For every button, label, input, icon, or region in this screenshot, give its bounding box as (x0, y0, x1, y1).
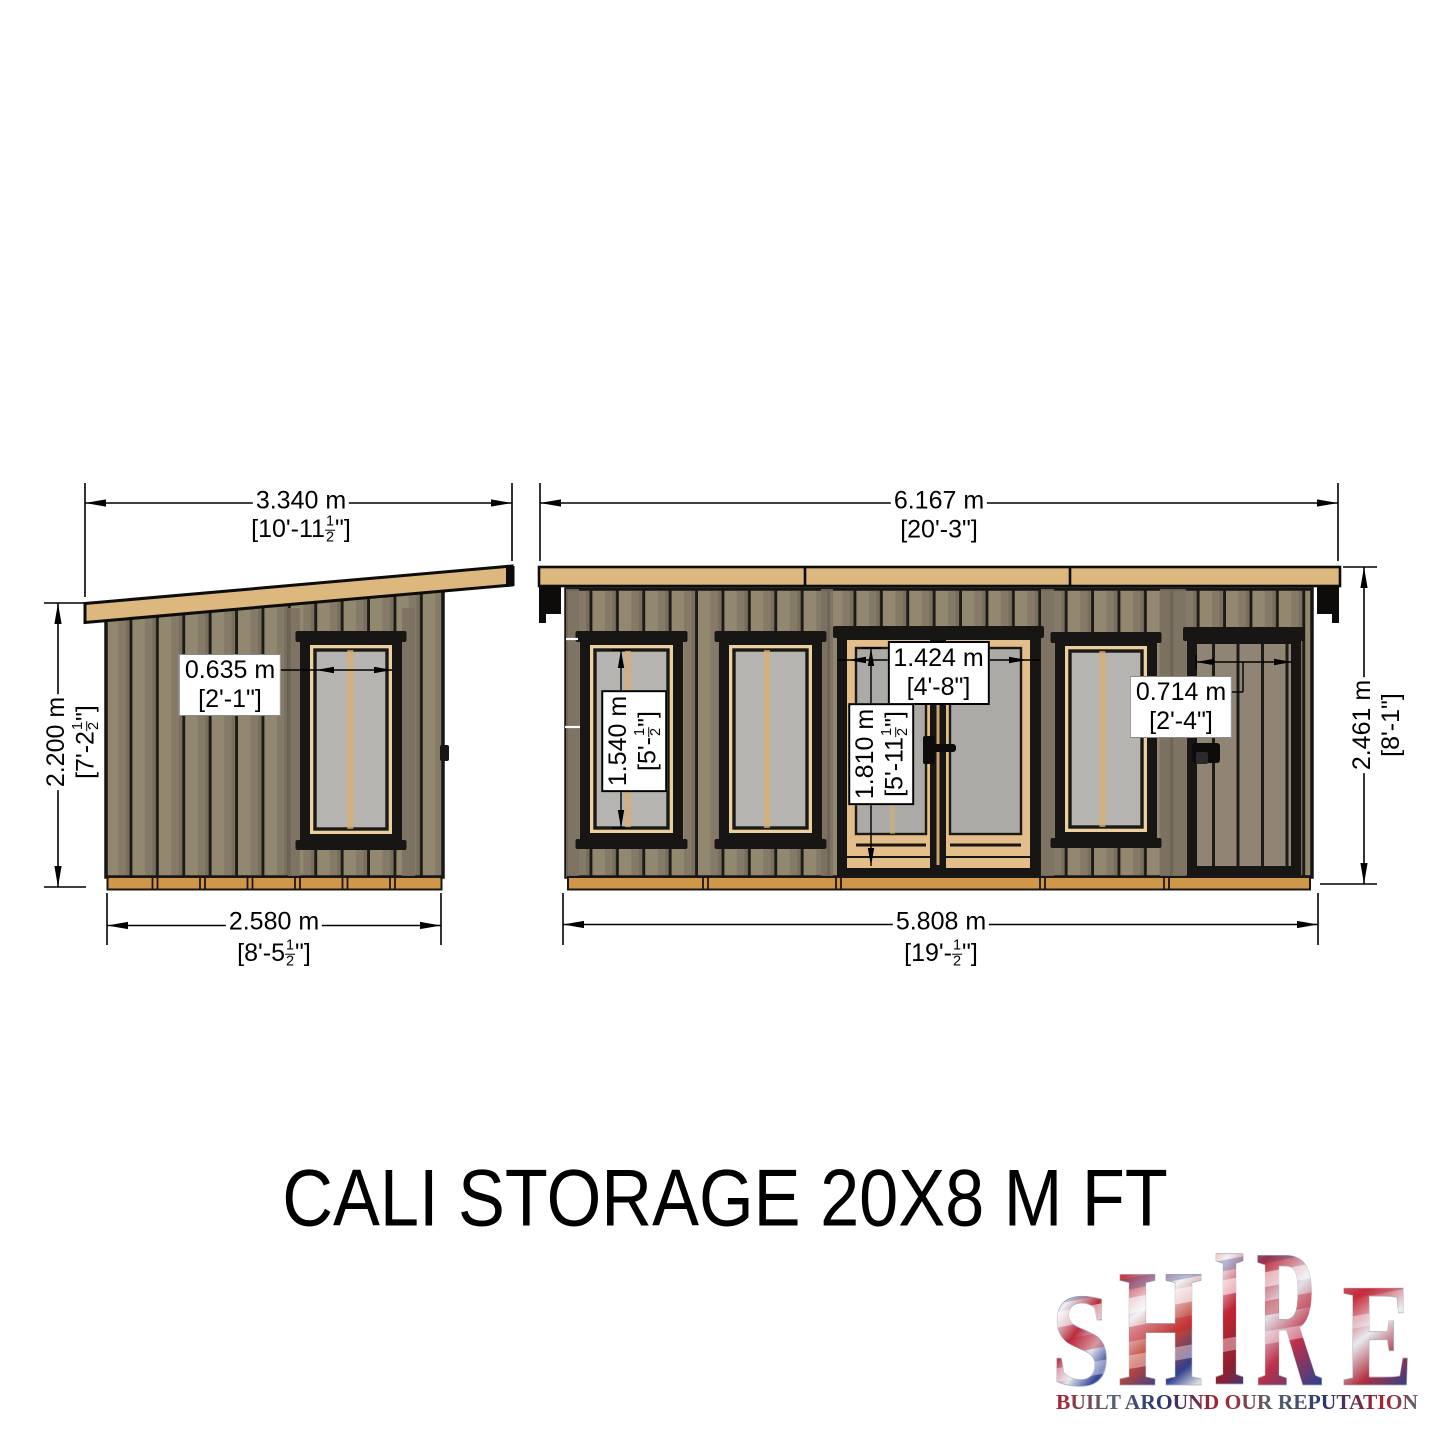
svg-text:BUILT AROUND OUR REPUTATION: BUILT AROUND OUR REPUTATION (1056, 1390, 1418, 1414)
